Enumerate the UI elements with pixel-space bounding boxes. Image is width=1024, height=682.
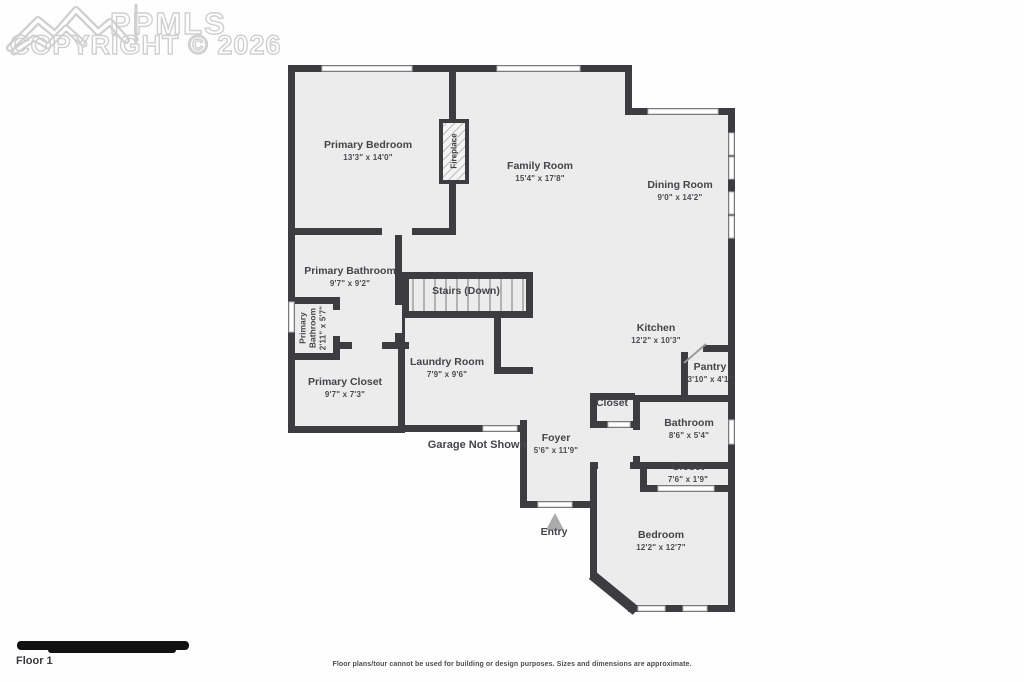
room-label-kitchen: Kitchen 12'2" x 10'3" <box>631 322 681 346</box>
floor-plan-page: PPMLS COPYRIGHT © 2026 Primary Bedroom 1… <box>0 0 1024 682</box>
room-name: Bedroom <box>636 529 686 543</box>
room-label-stairs: Stairs (Down) <box>432 285 500 299</box>
room-dims: 13'3" x 14'0" <box>324 153 412 163</box>
room-label-dining-room: Dining Room 9'0" x 14'2" <box>647 179 712 203</box>
room-name: Closet <box>596 397 628 411</box>
room-dims: 7'6" x 1'9" <box>668 475 708 485</box>
room-name: Primary Bathroom <box>299 301 319 355</box>
room-label-foyer: Foyer 5'6" x 11'9" <box>534 432 579 456</box>
room-name: Foyer <box>534 432 579 446</box>
entry-label: Entry <box>541 526 568 538</box>
room-dims: 3'10" x 4'1" <box>688 375 733 385</box>
room-name: Primary Bedroom <box>324 139 412 153</box>
room-label-primary-bathroom-small: Primary Bathroom 2'11" x 5'7" <box>299 301 328 355</box>
room-name: Stairs (Down) <box>432 285 500 299</box>
garage-note: Garage Not Shown <box>428 439 526 451</box>
room-dims: 5'6" x 11'9" <box>534 446 579 456</box>
room-label-closet-bedroom: Closet 7'6" x 1'9" <box>668 461 708 485</box>
room-name: Bathroom <box>664 417 714 431</box>
room-label-primary-closet: Primary Closet 9'7" x 7'3" <box>308 376 382 400</box>
room-name: Family Room <box>507 160 573 174</box>
mountain-logo-icon <box>10 5 136 52</box>
redacted-address-bar-2 <box>48 647 176 653</box>
room-dims: 8'6" x 5'4" <box>664 431 714 441</box>
room-label-bathroom: Bathroom 8'6" x 5'4" <box>664 417 714 441</box>
room-dims: 9'0" x 14'2" <box>647 193 712 203</box>
room-label-laundry-room: Laundry Room 7'9" x 9'6" <box>410 356 484 380</box>
room-dims: 12'2" x 12'7" <box>636 543 686 553</box>
room-dims: 9'7" x 9'2" <box>304 279 396 289</box>
room-label-family-room: Family Room 15'4" x 17'8" <box>507 160 573 184</box>
room-name: Dining Room <box>647 179 712 193</box>
room-name: Closet <box>668 461 708 475</box>
room-name: Laundry Room <box>410 356 484 370</box>
room-label-pantry: Pantry 3'10" x 4'1" <box>688 361 733 385</box>
room-name: Primary Bathroom <box>304 265 396 279</box>
disclaimer-text: Floor plans/tour cannot be used for buil… <box>0 661 1024 668</box>
floor-plan-drawing <box>0 0 1024 682</box>
room-dims: 15'4" x 17'8" <box>507 174 573 184</box>
room-label-bedroom: Bedroom 12'2" x 12'7" <box>636 529 686 553</box>
room-dims: 7'9" x 9'6" <box>410 370 484 380</box>
room-label-primary-bedroom: Primary Bedroom 13'3" x 14'0" <box>324 139 412 163</box>
room-name: Kitchen <box>631 322 681 336</box>
room-label-primary-bathroom: Primary Bathroom 9'7" x 9'2" <box>304 265 396 289</box>
room-name: Primary Closet <box>308 376 382 390</box>
room-dims: 12'2" x 10'3" <box>631 336 681 346</box>
room-label-closet-foyer: Closet <box>596 397 628 411</box>
fireplace-label: Fireplace <box>450 133 459 168</box>
room-dims: 9'7" x 7'3" <box>308 390 382 400</box>
room-dims: 2'11" x 5'7" <box>318 301 327 355</box>
room-name: Pantry <box>688 361 733 375</box>
